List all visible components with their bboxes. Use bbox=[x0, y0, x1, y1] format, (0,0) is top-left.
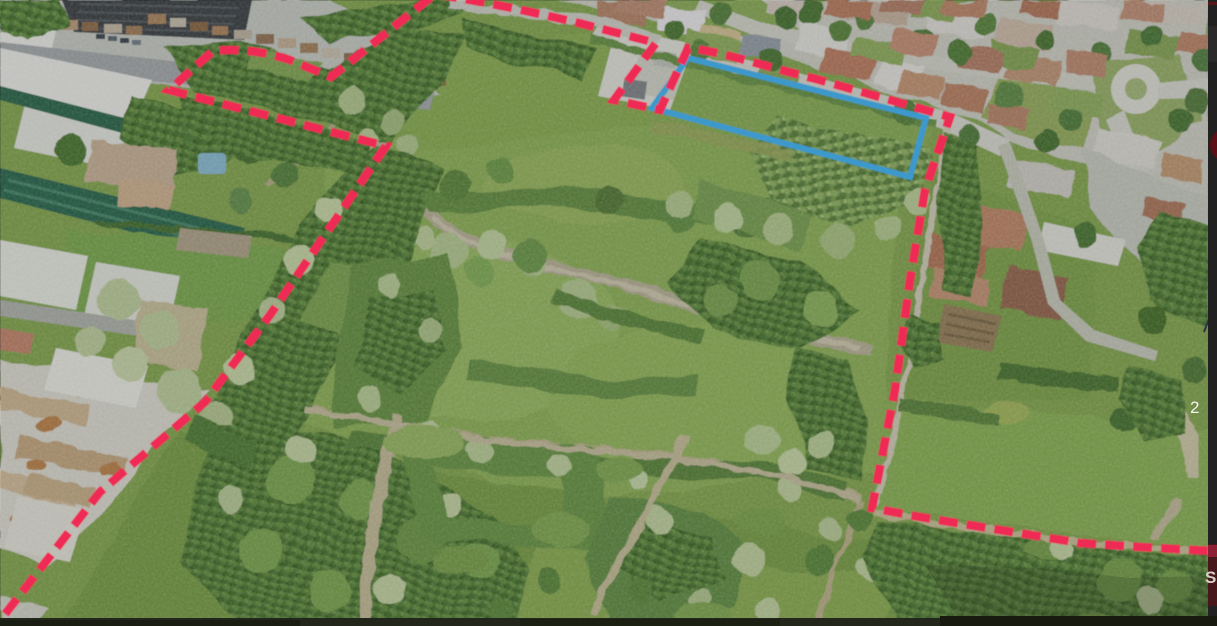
svg-text:S: S bbox=[1205, 568, 1216, 587]
svg-text:2: 2 bbox=[1190, 398, 1199, 417]
